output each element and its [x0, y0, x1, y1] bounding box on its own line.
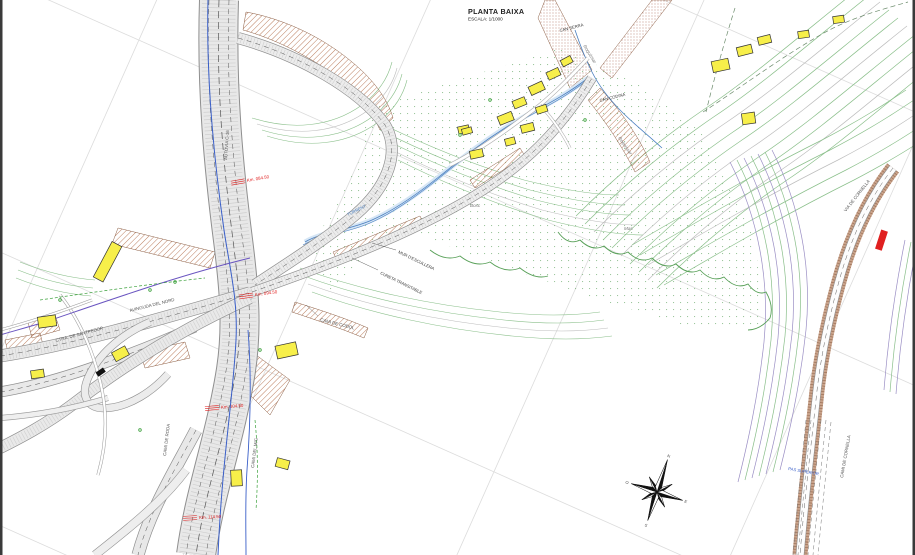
station-label: Km. 084.50: [246, 174, 270, 183]
compass-s: S: [644, 522, 648, 528]
area-label: Mas: [624, 226, 633, 231]
callout-label: CUNETA TRANSITABLE: [380, 270, 424, 295]
compass-rose: N S E O: [614, 443, 700, 537]
sheet-scale: ESCALA: 1/1000: [468, 17, 503, 22]
title-block: PLANTA BAIXA ESCALA: 1/1000: [468, 7, 524, 22]
compass-w: O: [625, 479, 630, 485]
site-plan-sheet: Km. 084.50 Km. 094.50 Km. 104.50 Km. 114…: [0, 0, 915, 555]
right-road: [793, 168, 893, 555]
callout-label: MUR D'ESCULLERA: [398, 249, 436, 271]
contour-lines-left: [16, 262, 95, 296]
main-highway: [95, 0, 250, 555]
compass-e: E: [684, 499, 688, 505]
sheet-title: PLANTA BAIXA: [468, 7, 524, 16]
road-label: CAMI DE CORNELLA: [839, 435, 851, 478]
structure-marker-red: [875, 230, 888, 251]
compass-n: N: [667, 453, 671, 459]
area-label: Bosc: [470, 203, 481, 208]
left-edge-strip: [0, 0, 3, 555]
plan-drawing: Km. 084.50 Km. 094.50 Km. 104.50 Km. 114…: [0, 0, 915, 555]
road-label: CAMI DE RODA: [162, 423, 171, 456]
